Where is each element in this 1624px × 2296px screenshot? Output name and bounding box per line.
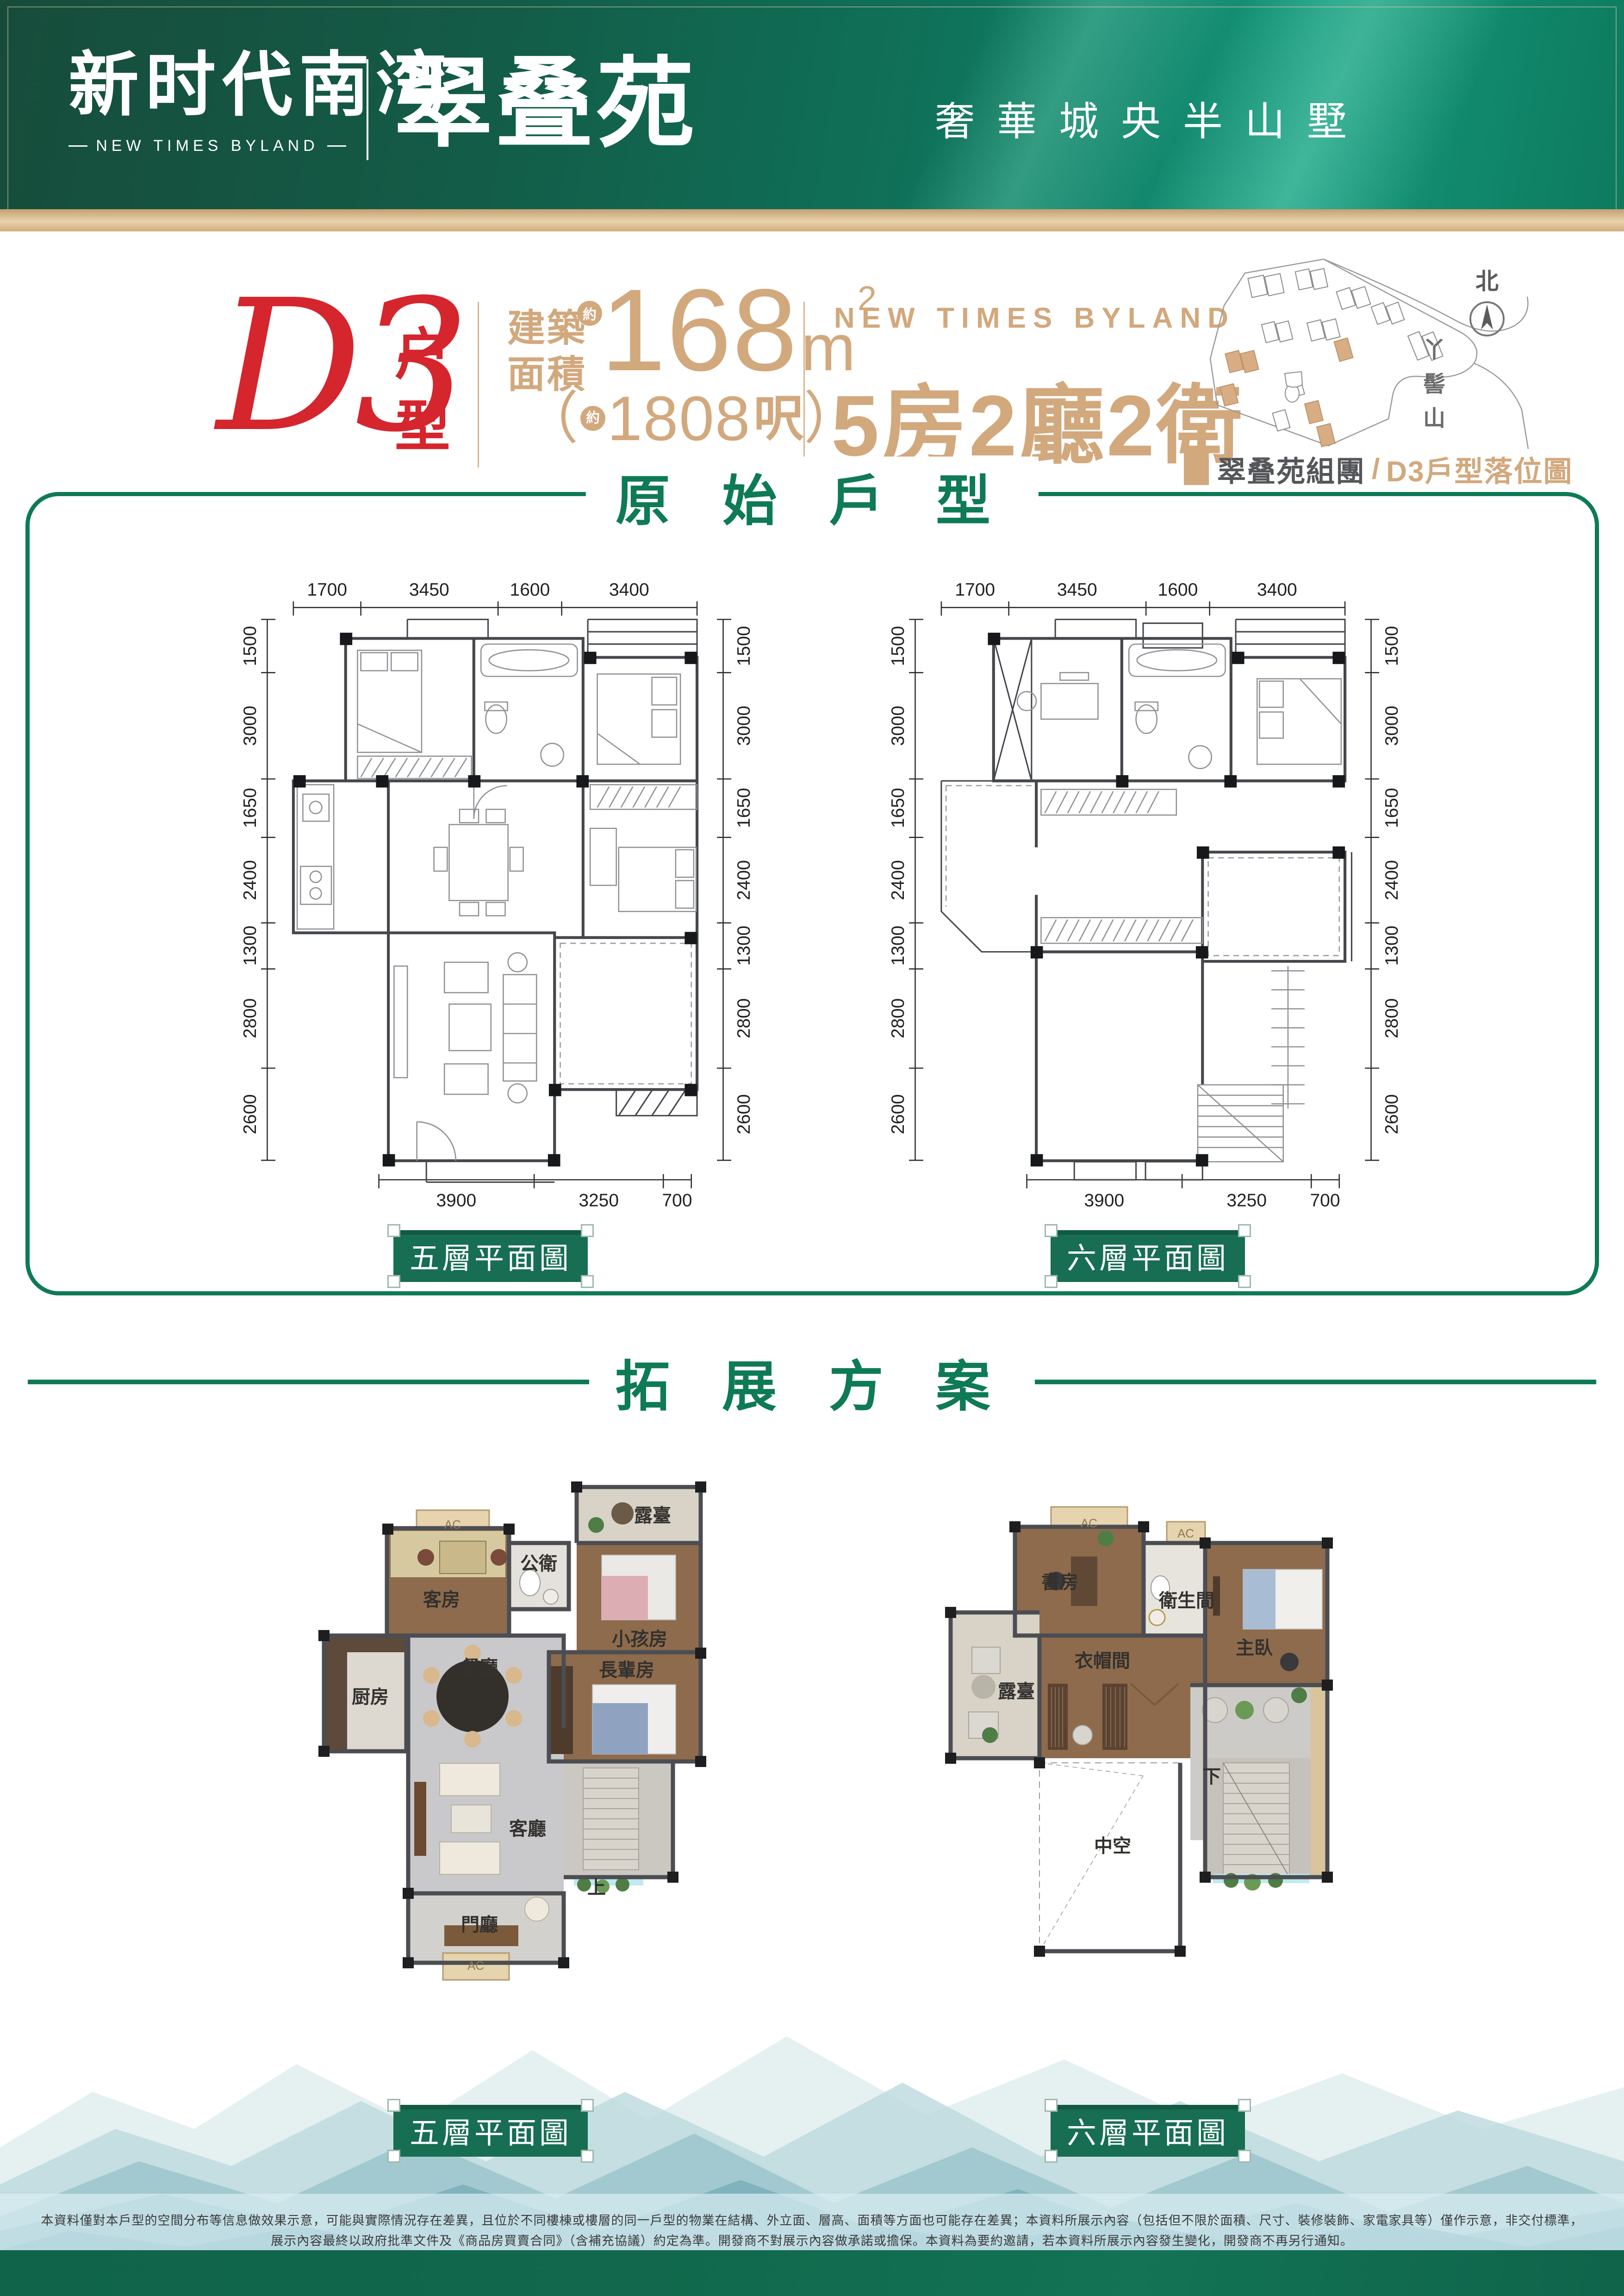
- expansion-section-header: 拓 展 方 案: [28, 1342, 1596, 1421]
- area-value: 168: [601, 272, 798, 389]
- dash-left: [68, 145, 87, 147]
- corner-mark: [581, 1275, 594, 1288]
- legend-unit-name: D3戶型落位圖: [1386, 448, 1573, 490]
- svg-text:公衛: 公衛: [520, 1554, 557, 1574]
- svg-text:1650: 1650: [240, 788, 260, 828]
- svg-text:2800: 2800: [240, 998, 260, 1039]
- svg-text:2800: 2800: [734, 998, 754, 1039]
- svg-text:露臺: 露臺: [998, 1681, 1035, 1702]
- svg-text:書房: 書房: [1041, 1572, 1078, 1593]
- original-plan-5f: 1700 3450 1600 3400 1500 3000 1650 2400 …: [222, 562, 768, 1227]
- plan-label-6f-original: 六層平面圖: [1051, 1230, 1245, 1282]
- svg-text:衣帽間: 衣帽間: [1075, 1651, 1130, 1671]
- legend-separator: /: [1372, 453, 1380, 485]
- svg-text:1300: 1300: [240, 926, 260, 966]
- unit-suffix-char-2: 型: [392, 391, 453, 463]
- svg-text:3450: 3450: [1057, 580, 1097, 600]
- svg-text:2600: 2600: [240, 1094, 260, 1134]
- svg-text:2400: 2400: [1382, 860, 1402, 900]
- svg-text:露臺: 露臺: [634, 1506, 671, 1526]
- svg-text:3400: 3400: [609, 580, 649, 600]
- expansion-plan-5f: AC AC 客房 公衛 露臺 小孩房 餐廳 厨房 長輩房 客廳 上 門廳: [278, 1467, 787, 2069]
- corner-mark: [1045, 1224, 1058, 1237]
- alt-open: （: [522, 390, 579, 447]
- brand-en-info: NEW TIMES BYLAND: [834, 302, 1235, 335]
- svg-text:小孩房: 小孩房: [612, 1629, 667, 1649]
- corner-mark: [581, 1224, 594, 1237]
- north-arrow-icon: [1467, 299, 1507, 339]
- svg-text:3250: 3250: [579, 1191, 619, 1211]
- plan-label-5f-expansion: 五層平面圖: [393, 2105, 588, 2157]
- svg-text:3000: 3000: [734, 706, 754, 746]
- expansion-section-title: 拓 展 方 案: [615, 1342, 1008, 1421]
- dash-right: [327, 145, 346, 147]
- brand-name-en: NEW TIMES BYLAND: [96, 137, 319, 155]
- footer-bar: [0, 2250, 1624, 2296]
- brand-name-en-row: NEW TIMES BYLAND: [68, 137, 346, 155]
- svg-text:3400: 3400: [1257, 580, 1297, 600]
- divider-2: [803, 302, 805, 467]
- site-map-legend: 翠叠苑組團 / D3戶型落位圖: [1184, 448, 1573, 490]
- corner-mark: [387, 2099, 400, 2112]
- furniture-6f: [1017, 644, 1341, 1162]
- svg-text:1300: 1300: [1382, 926, 1402, 966]
- svg-text:AC: AC: [444, 1518, 461, 1531]
- svg-text:AC: AC: [1177, 1526, 1194, 1540]
- alt-area-value: 1808: [607, 387, 751, 450]
- svg-text:700: 700: [662, 1191, 692, 1211]
- expansion-plan-6f: AC AC 書房 衛生間 主臥 衣帽間 露臺 下 中空: [926, 1467, 1435, 2069]
- svg-text:長輩房: 長輩房: [599, 1660, 654, 1680]
- mountain-name: 丫髻山: [1415, 338, 1448, 441]
- svg-text:1700: 1700: [955, 580, 995, 600]
- unit-suffix-char-1: 户: [392, 318, 453, 391]
- original-plan-6f: 1700 3450 1600 3400 1500 3000 1650 2400 …: [870, 562, 1416, 1227]
- svg-text:1600: 1600: [1158, 580, 1198, 600]
- corner-mark: [1238, 2099, 1251, 2112]
- legend-swatch: [1184, 453, 1209, 485]
- corner-mark: [387, 1224, 400, 1237]
- svg-text:客房: 客房: [423, 1590, 460, 1610]
- svg-text:1300: 1300: [734, 926, 754, 966]
- logo-divider: [367, 59, 368, 160]
- svg-text:2400: 2400: [734, 860, 754, 900]
- plan-label-text: 五層平面圖: [410, 2109, 572, 2152]
- svg-text:中空: 中空: [1094, 1836, 1131, 1856]
- legend-group-name: 翠叠苑組團: [1217, 448, 1365, 490]
- title-line-left: [28, 1380, 589, 1384]
- corner-mark: [1238, 2150, 1251, 2163]
- svg-text:1300: 1300: [888, 926, 908, 966]
- svg-text:2600: 2600: [1382, 1094, 1402, 1134]
- dimension-rulers-6f: 1700 3450 1600 3400 1500 3000 1650 2400 …: [888, 580, 1402, 1211]
- corner-mark: [581, 2099, 594, 2112]
- svg-text:1500: 1500: [1382, 626, 1402, 666]
- svg-text:3250: 3250: [1226, 1191, 1267, 1211]
- svg-text:3900: 3900: [1084, 1191, 1124, 1211]
- svg-text:1650: 1650: [734, 788, 754, 828]
- corner-mark: [1238, 1275, 1251, 1288]
- area-label-1: 建築: [507, 305, 587, 352]
- gold-bar: [0, 209, 1624, 231]
- north-indicator: 北: [1462, 263, 1512, 341]
- header-tagline: 奢華城央半山墅: [935, 89, 1369, 147]
- svg-text:3450: 3450: [409, 580, 449, 600]
- corner-mark: [581, 2150, 594, 2163]
- corner-mark: [387, 1275, 400, 1288]
- svg-text:2800: 2800: [888, 998, 908, 1039]
- north-label: 北: [1462, 263, 1512, 296]
- svg-text:1500: 1500: [240, 626, 260, 666]
- divider-1: [478, 302, 479, 467]
- approx-badge: 約: [577, 301, 602, 326]
- original-section-title: 原 始 戶 型: [586, 457, 1039, 536]
- unit-code-suffix: 户 型: [392, 318, 453, 463]
- corner-mark: [387, 2150, 400, 2163]
- svg-text:3000: 3000: [888, 706, 908, 746]
- plan-label-text: 六層平面圖: [1067, 2109, 1229, 2152]
- plan-label-6f-expansion: 六層平面圖: [1051, 2105, 1245, 2157]
- svg-text:上: 上: [587, 1878, 606, 1898]
- disclaimer-line-2: 展示內容最終以政府批準文件及《商品房買賣合同》（含補充協議）約定為準。開發商不對…: [0, 2231, 1624, 2249]
- approx-badge-2: 約: [580, 406, 605, 431]
- disclaimer-line-1: 本資料僅對本戶型的空間分布等信息做效果示意，可能與實際情況存在差異，且位於不同樓…: [0, 2210, 1624, 2228]
- svg-text:1700: 1700: [307, 580, 347, 600]
- svg-text:3000: 3000: [240, 706, 260, 746]
- svg-text:1500: 1500: [734, 626, 754, 666]
- svg-text:1500: 1500: [888, 626, 908, 666]
- svg-text:下: 下: [1202, 1767, 1221, 1787]
- area-label: 建築 面積: [507, 305, 587, 398]
- svg-text:AC: AC: [1081, 1516, 1097, 1530]
- svg-text:AC: AC: [467, 1959, 484, 1972]
- svg-text:厨房: 厨房: [352, 1687, 389, 1707]
- walls-6f: [941, 619, 1352, 1180]
- svg-text:衛生間: 衛生間: [1158, 1591, 1214, 1611]
- svg-text:2400: 2400: [888, 860, 908, 900]
- svg-text:2800: 2800: [1382, 998, 1402, 1039]
- corner-mark: [1045, 2099, 1058, 2112]
- svg-text:門廳: 門廳: [461, 1914, 498, 1935]
- svg-text:3000: 3000: [1382, 706, 1402, 746]
- plan-label-text: 五層平面圖: [410, 1235, 572, 1277]
- furniture-5f: [297, 644, 697, 1161]
- svg-text:3900: 3900: [436, 1191, 476, 1211]
- svg-text:客廳: 客廳: [509, 1818, 546, 1839]
- svg-text:主臥: 主臥: [1236, 1638, 1273, 1658]
- plan-label-5f-original: 五層平面圖: [393, 1230, 588, 1282]
- corner-mark: [1045, 1275, 1058, 1288]
- svg-text:700: 700: [1310, 1191, 1340, 1211]
- area-alt-group: （ 約 1808 呎 ）: [522, 387, 860, 450]
- svg-text:餐廳: 餐廳: [461, 1657, 498, 1678]
- header-banner: 新时代南湾 NEW TIMES BYLAND 翠叠苑 奢華城央半山墅: [0, 0, 1624, 209]
- svg-text:2400: 2400: [240, 860, 260, 900]
- wall-columns-5f: [293, 633, 697, 1166]
- project-name: 翠叠苑: [394, 40, 697, 168]
- svg-text:2600: 2600: [734, 1094, 754, 1134]
- svg-text:1600: 1600: [510, 580, 550, 600]
- svg-text:2600: 2600: [888, 1094, 908, 1134]
- plan-label-text: 六層平面圖: [1067, 1235, 1229, 1277]
- svg-text:1650: 1650: [1382, 788, 1402, 828]
- title-line-right: [1035, 1380, 1596, 1384]
- brochure-page: 新时代南湾 NEW TIMES BYLAND 翠叠苑 奢華城央半山墅 D3 户 …: [0, 0, 1624, 2296]
- corner-mark: [1238, 1224, 1251, 1237]
- svg-text:1650: 1650: [888, 788, 908, 828]
- corner-mark: [1045, 2150, 1058, 2163]
- alt-area-unit: 呎: [754, 393, 804, 443]
